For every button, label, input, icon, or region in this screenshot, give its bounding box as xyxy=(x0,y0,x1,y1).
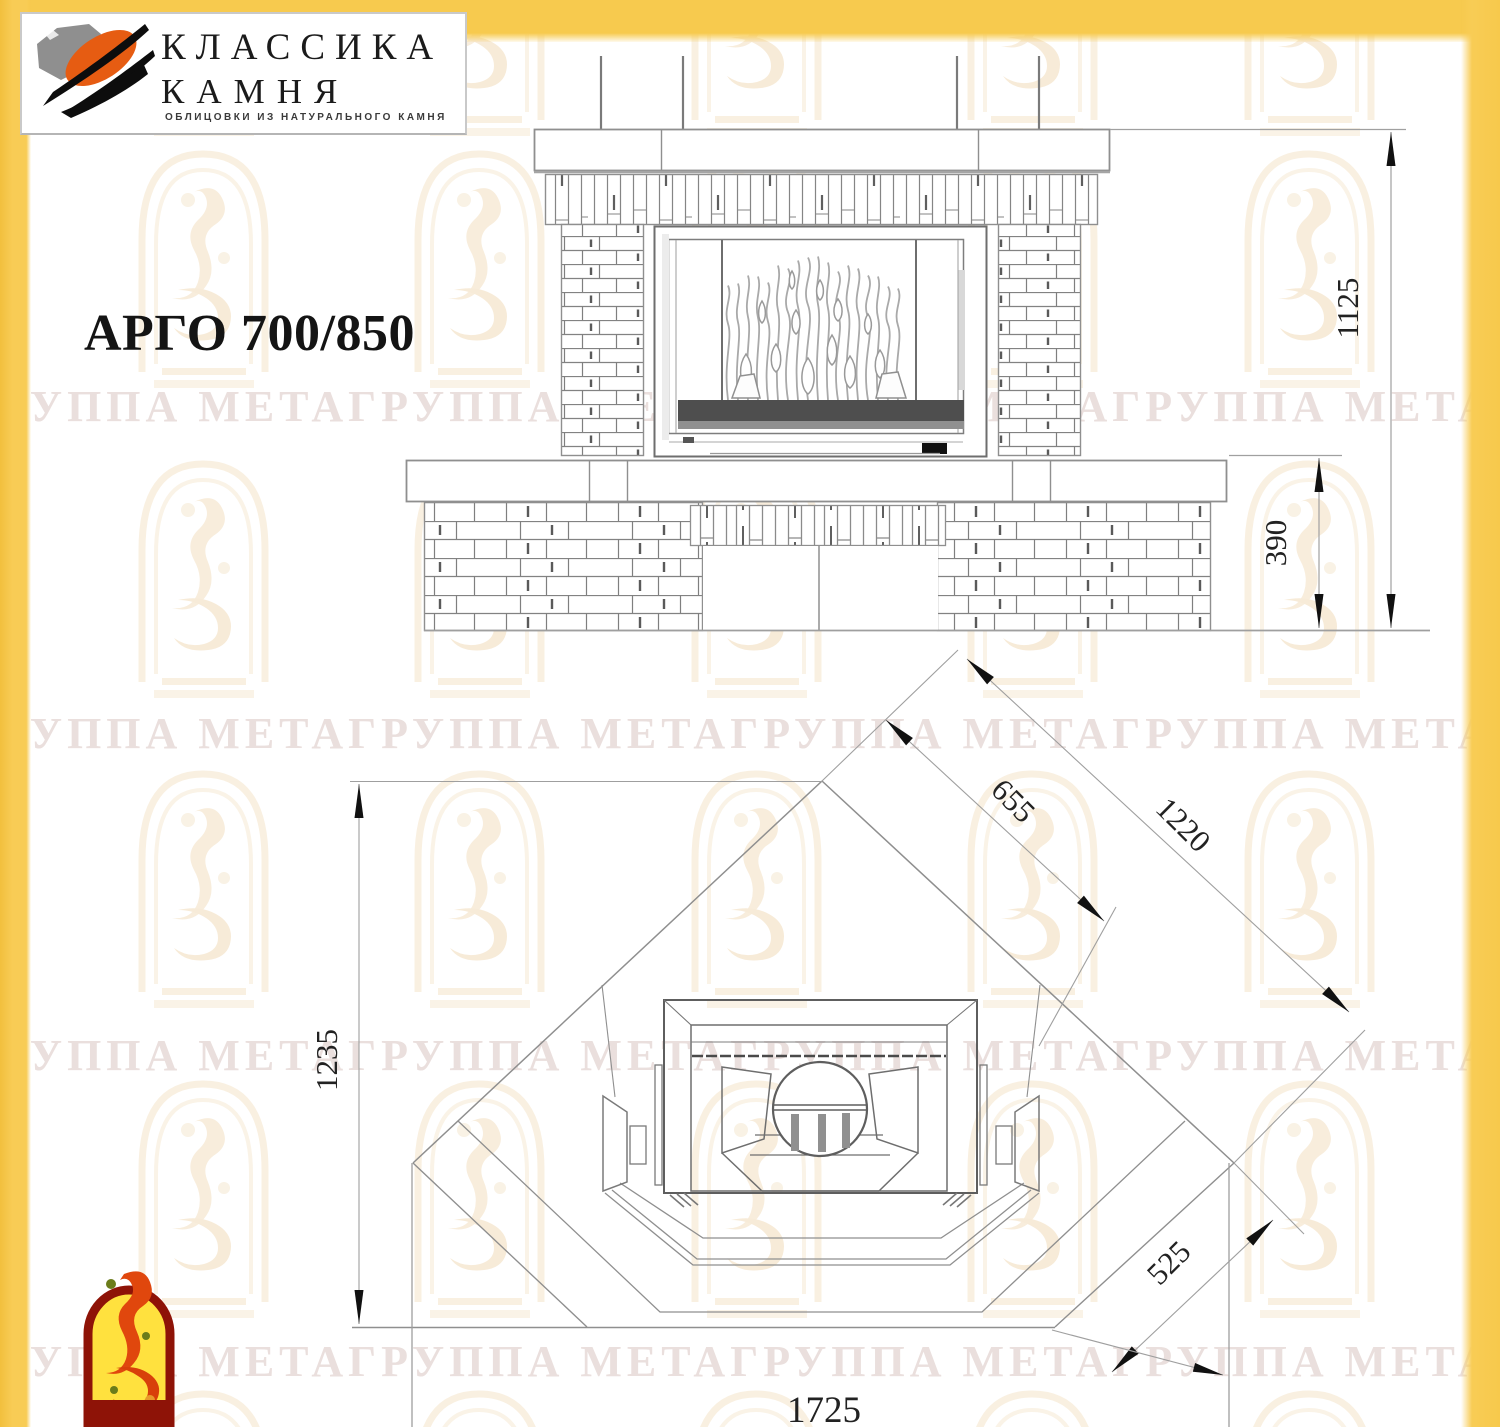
svg-text:1125: 1125 xyxy=(1330,278,1365,339)
svg-text:655: 655 xyxy=(985,772,1043,830)
svg-text:1725: 1725 xyxy=(787,1390,861,1427)
svg-text:1235: 1235 xyxy=(309,1029,344,1091)
svg-text:525: 525 xyxy=(1140,1234,1198,1292)
svg-text:390: 390 xyxy=(1258,520,1293,567)
svg-text:1220: 1220 xyxy=(1149,790,1218,859)
